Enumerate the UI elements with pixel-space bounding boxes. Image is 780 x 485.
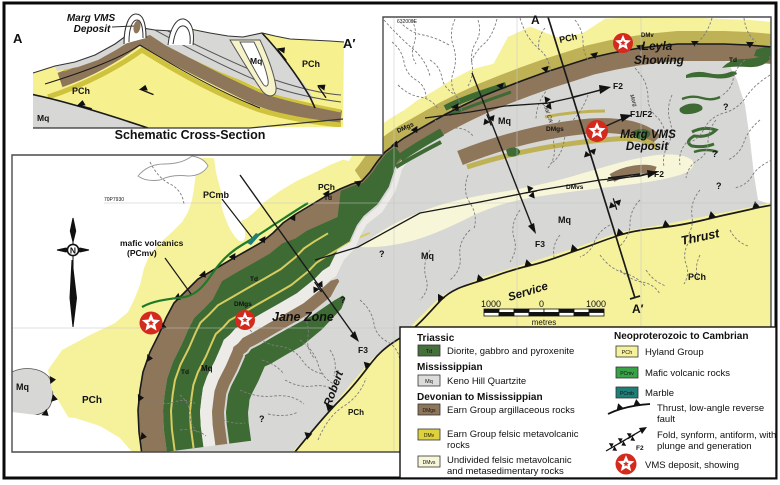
svg-text:fault: fault — [657, 414, 675, 425]
svg-text:DMv: DMv — [424, 433, 435, 439]
svg-text:Mq: Mq — [250, 56, 262, 66]
svg-text:Fold, synform, antiform, with: Fold, synform, antiform, with — [657, 430, 776, 441]
svg-text:?: ? — [379, 249, 385, 259]
svg-text:N: N — [70, 245, 76, 255]
svg-text:Mq: Mq — [201, 364, 213, 373]
svg-text:PCh: PCh — [72, 86, 90, 96]
svg-text:PCmb: PCmb — [203, 190, 230, 200]
svg-text:VMS deposit, showing: VMS deposit, showing — [645, 460, 739, 471]
svg-text:Earn Group felsic metavolcanic: Earn Group felsic metavolcanic — [447, 429, 579, 440]
svg-text:A′: A′ — [343, 36, 356, 51]
svg-text:Deposit: Deposit — [74, 24, 111, 35]
svg-text:Td: Td — [426, 349, 432, 355]
svg-text:A′: A′ — [632, 302, 644, 316]
svg-text:Neoproterozoic to Cambrian: Neoproterozoic to Cambrian — [614, 331, 748, 342]
svg-text:?: ? — [712, 149, 718, 159]
svg-text:Mq: Mq — [498, 116, 511, 126]
svg-text:Keno Hill Quartzite: Keno Hill Quartzite — [447, 376, 526, 387]
svg-text:A: A — [13, 31, 23, 46]
svg-text:PCh: PCh — [348, 408, 364, 417]
svg-text:PCh: PCh — [302, 59, 320, 69]
svg-text:PCh: PCh — [688, 272, 706, 282]
svg-text:F2: F2 — [613, 81, 623, 91]
svg-text:Showing: Showing — [634, 53, 685, 67]
svg-text:metres: metres — [532, 318, 556, 327]
svg-text:70P7930: 70P7930 — [104, 197, 124, 203]
svg-text:Schematic Cross-Section: Schematic Cross-Section — [115, 128, 266, 142]
svg-text:DMgs: DMgs — [234, 301, 252, 308]
svg-text:PCh: PCh — [318, 182, 335, 192]
svg-text:Mq: Mq — [558, 215, 571, 225]
svg-text:PCh: PCh — [82, 395, 102, 406]
svg-text:Jane Zone: Jane Zone — [272, 310, 334, 324]
svg-text:Mq: Mq — [37, 113, 49, 123]
svg-text:0: 0 — [539, 299, 544, 309]
svg-text:?: ? — [340, 295, 346, 305]
svg-text:1000: 1000 — [481, 299, 501, 309]
svg-text:Deposit: Deposit — [626, 141, 669, 153]
svg-text:A: A — [531, 13, 540, 27]
svg-text:Triassic: Triassic — [417, 333, 455, 344]
svg-text:DMvs: DMvs — [566, 184, 584, 191]
svg-text:Diorite, gabbro and pyroxenite: Diorite, gabbro and pyroxenite — [447, 346, 574, 357]
svg-text:Mq: Mq — [425, 379, 433, 385]
svg-text:(PCmv): (PCmv) — [127, 248, 157, 258]
svg-text:F2: F2 — [636, 445, 644, 452]
svg-text:Mq: Mq — [421, 251, 434, 261]
svg-text:Mafic volcanic rocks: Mafic volcanic rocks — [645, 368, 730, 379]
svg-text:?: ? — [259, 414, 265, 424]
svg-text:Marg VMS: Marg VMS — [67, 13, 116, 24]
svg-text:F2: F2 — [654, 169, 664, 179]
svg-text:Marg VMS: Marg VMS — [620, 129, 676, 141]
svg-text:Td: Td — [250, 276, 258, 283]
svg-text:Thrust, low-angle reverse: Thrust, low-angle reverse — [657, 403, 764, 414]
svg-text:DMgs: DMgs — [422, 408, 436, 414]
svg-text:1000: 1000 — [586, 299, 606, 309]
svg-text:F3: F3 — [358, 345, 368, 355]
svg-text:Undivided felsic metavolcanic: Undivided felsic metavolcanic — [447, 455, 572, 466]
svg-text:mafic volcanics: mafic volcanics — [120, 238, 184, 248]
svg-text:632000E: 632000E — [397, 19, 418, 25]
svg-text:Mq: Mq — [16, 382, 29, 392]
svg-text:F1/F2: F1/F2 — [630, 109, 652, 119]
svg-text:Devonian to Mississippian: Devonian to Mississippian — [417, 392, 543, 403]
svg-text:PCmv: PCmv — [620, 371, 634, 377]
svg-text:F3: F3 — [535, 239, 545, 249]
svg-text:plunge and generation: plunge and generation — [657, 441, 752, 452]
svg-text:Marble: Marble — [645, 388, 674, 399]
svg-text:PCh: PCh — [622, 350, 633, 356]
svg-text:Td: Td — [324, 195, 332, 202]
svg-text:and metasedimentary rocks: and metasedimentary rocks — [447, 466, 564, 477]
svg-text:Earn Group argillaceous rocks: Earn Group argillaceous rocks — [447, 405, 575, 416]
svg-text:Leyla: Leyla — [642, 39, 673, 53]
svg-text:?: ? — [716, 181, 722, 191]
svg-text:Td: Td — [181, 369, 189, 376]
svg-text:Td: Td — [729, 57, 737, 64]
svg-text:Td: Td — [451, 106, 459, 113]
svg-text:PCmb: PCmb — [620, 391, 634, 397]
svg-text:Hyland Group: Hyland Group — [645, 347, 704, 358]
svg-text:?: ? — [723, 102, 729, 112]
svg-text:rocks: rocks — [447, 440, 470, 451]
svg-text:DMgs: DMgs — [546, 126, 564, 133]
svg-text:DMvs: DMvs — [423, 460, 436, 466]
svg-text:Mississippian: Mississippian — [417, 362, 483, 373]
